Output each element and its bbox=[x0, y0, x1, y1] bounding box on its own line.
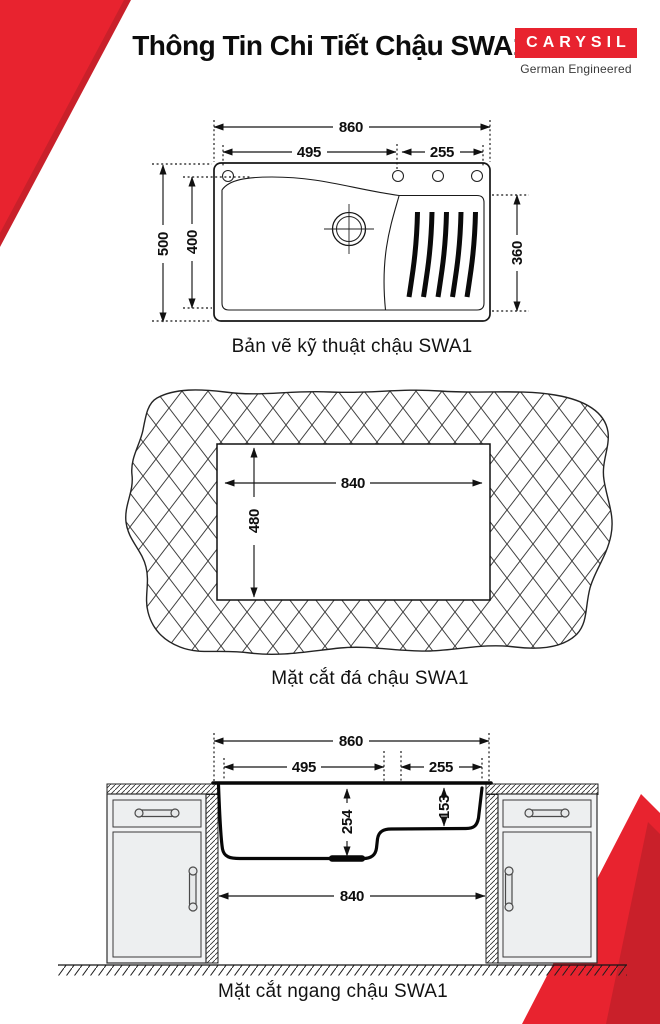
side-panel-left bbox=[206, 794, 218, 963]
dim-label: 360 bbox=[509, 241, 526, 265]
brand-logo: CARYSIL German Engineered bbox=[515, 28, 637, 76]
top-view-caption: Bản vẽ kỹ thuật chậu SWA1 bbox=[232, 336, 473, 357]
side-panel-right bbox=[486, 794, 498, 963]
dim-label: 500 bbox=[155, 232, 172, 256]
dim-label: 255 bbox=[429, 759, 453, 776]
dim-bowl-depth: 254 bbox=[339, 789, 356, 856]
dim-label: 840 bbox=[341, 475, 365, 492]
dim-label: 495 bbox=[292, 759, 316, 776]
dim-label: 860 bbox=[339, 733, 363, 750]
cabinet-right bbox=[498, 794, 597, 963]
cross-section-caption: Mặt cắt ngang chậu SWA1 bbox=[218, 980, 448, 1002]
dim-label: 840 bbox=[340, 888, 364, 905]
dim-drainboard-depth: 153 bbox=[436, 788, 453, 826]
dim-cutout-width: 840 bbox=[219, 888, 485, 905]
spec-sheet-page: 860 495 255 500 400 bbox=[0, 0, 660, 1024]
door-handle bbox=[189, 867, 197, 911]
stone-cutout-caption: Mặt cắt đá chậu SWA1 bbox=[271, 667, 469, 689]
dim-overall-depth: 500 bbox=[152, 164, 212, 322]
cross-section-drawing: 860 495 255 254 153 bbox=[58, 733, 627, 1002]
dim-bowl-width: 495 bbox=[224, 751, 384, 781]
floor-line bbox=[58, 965, 627, 976]
brand-tagline: German Engineered bbox=[515, 62, 637, 76]
door-handle bbox=[505, 867, 513, 911]
dim-drainboard-depth: 360 bbox=[492, 195, 529, 311]
dim-label: 480 bbox=[246, 509, 263, 533]
stone-cutout-drawing: 840 480 Mặt cắt đá chậu SWA1 bbox=[126, 390, 612, 689]
dim-drainboard-width: 255 bbox=[401, 751, 482, 781]
brand-logo-box: CARYSIL bbox=[515, 28, 637, 58]
technical-drawings-canvas: 860 495 255 500 400 bbox=[0, 0, 660, 1024]
dim-label: 860 bbox=[339, 119, 363, 136]
top-view-drawing: 860 495 255 500 400 bbox=[152, 119, 529, 357]
dim-label: 255 bbox=[430, 144, 454, 161]
dim-label: 400 bbox=[184, 230, 201, 254]
dim-label: 254 bbox=[339, 809, 356, 834]
dim-label: 153 bbox=[436, 795, 453, 819]
countertop-right bbox=[486, 784, 598, 795]
drawer-handle bbox=[135, 809, 179, 817]
dim-label: 495 bbox=[297, 144, 321, 161]
countertop-left bbox=[107, 784, 218, 795]
cabinet-left bbox=[107, 794, 206, 963]
drawer-handle bbox=[525, 809, 569, 817]
